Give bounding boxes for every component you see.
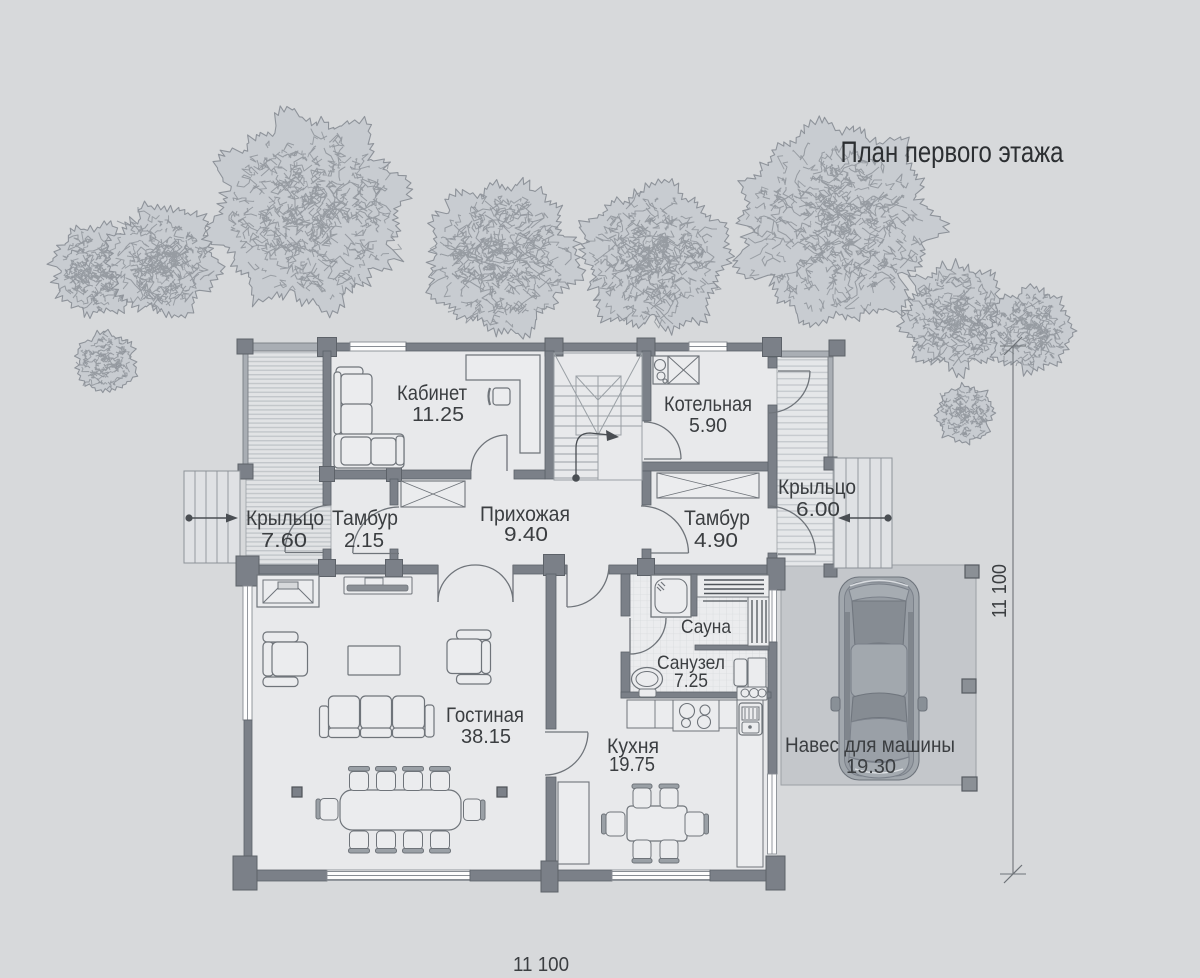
svg-text:Крыльцо: Крыльцо [778, 476, 856, 499]
svg-text:Тамбур: Тамбур [684, 507, 750, 530]
svg-text:38.15: 38.15 [461, 725, 511, 748]
svg-text:7.25: 7.25 [674, 671, 708, 692]
svg-text:Гостиная: Гостиная [446, 704, 524, 727]
svg-text:Навес для машины: Навес для машины [785, 734, 955, 757]
svg-text:11 100: 11 100 [989, 564, 1011, 618]
svg-text:6.00: 6.00 [796, 498, 840, 521]
svg-text:Сауна: Сауна [681, 616, 731, 638]
svg-text:11.25: 11.25 [412, 403, 464, 426]
svg-text:19.30: 19.30 [846, 755, 896, 778]
svg-text:9.40: 9.40 [504, 523, 548, 546]
svg-text:Крыльцо: Крыльцо [246, 507, 324, 530]
svg-text:4.90: 4.90 [694, 529, 738, 552]
svg-text:2.15: 2.15 [344, 529, 384, 552]
svg-text:5.90: 5.90 [689, 414, 727, 437]
svg-text:Кабинет: Кабинет [397, 382, 467, 405]
svg-text:План первого этажа: План первого этажа [841, 136, 1064, 169]
svg-text:19.75: 19.75 [609, 753, 655, 776]
svg-text:Тамбур: Тамбур [332, 507, 398, 530]
svg-text:11 100: 11 100 [513, 954, 569, 973]
svg-text:Котельная: Котельная [664, 393, 752, 416]
svg-text:7.60: 7.60 [261, 529, 307, 552]
